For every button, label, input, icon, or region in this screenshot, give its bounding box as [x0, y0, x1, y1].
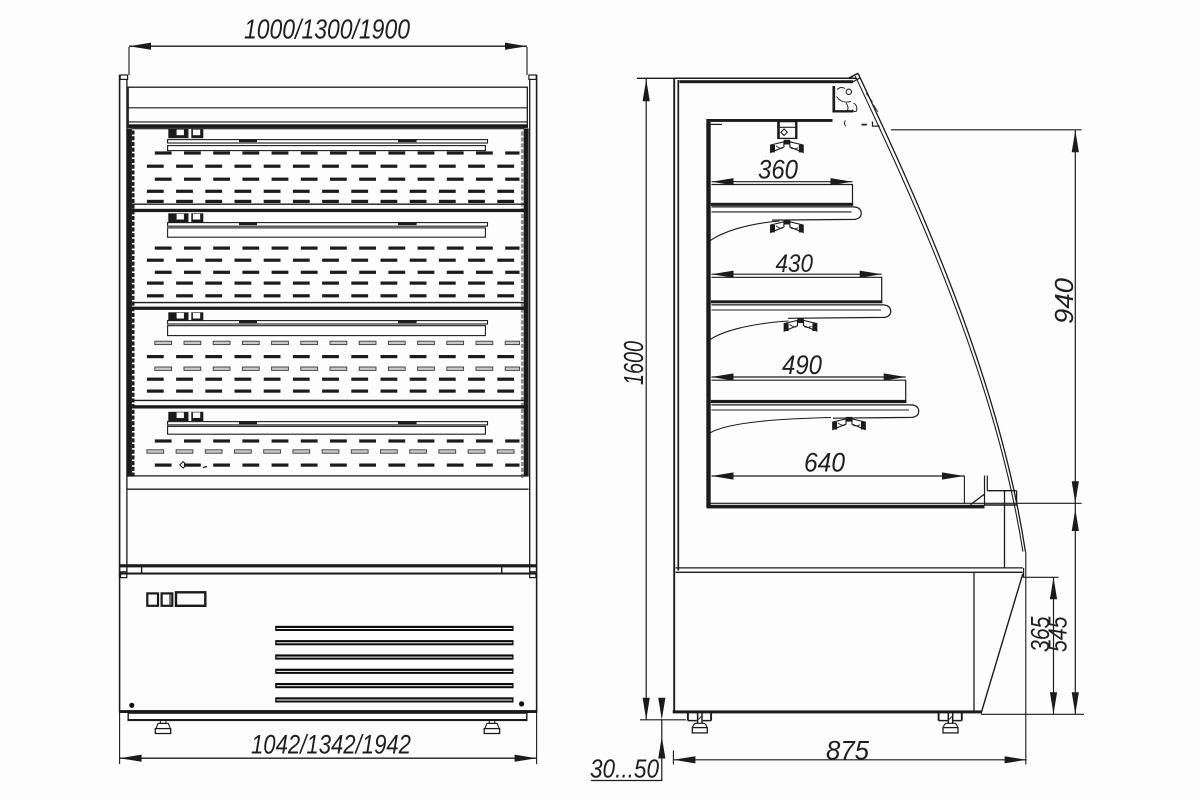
svg-text:940: 940 — [1049, 277, 1079, 324]
svg-text:1600: 1600 — [618, 341, 649, 385]
svg-text:430: 430 — [776, 250, 814, 278]
svg-text:640: 640 — [804, 447, 845, 477]
svg-text:30...50: 30...50 — [590, 754, 659, 784]
svg-text:360: 360 — [758, 154, 798, 184]
svg-text:545: 545 — [1043, 616, 1073, 652]
svg-text:490: 490 — [782, 350, 822, 380]
svg-text:875: 875 — [826, 736, 870, 766]
svg-text:1000/1300/1900: 1000/1300/1900 — [244, 14, 410, 45]
svg-text:1042/1342/1942: 1042/1342/1942 — [251, 730, 411, 760]
